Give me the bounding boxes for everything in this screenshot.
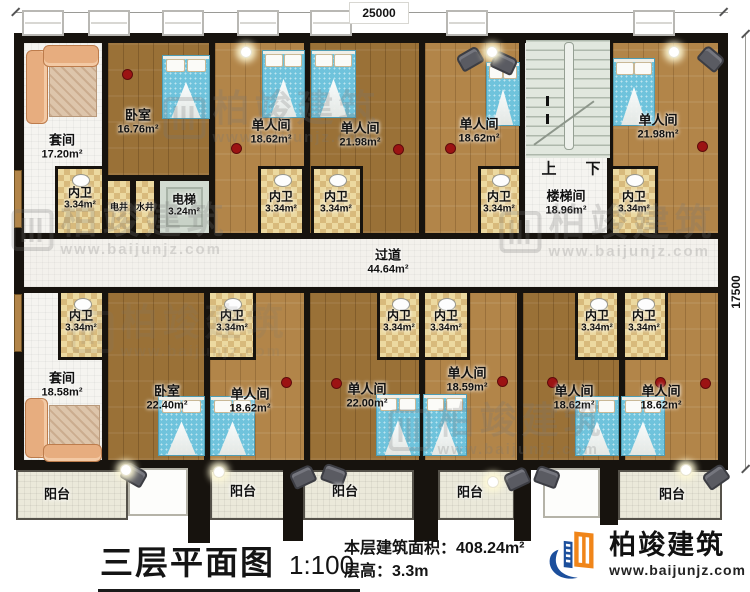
window-icon bbox=[237, 10, 279, 36]
room-name: 单人间 bbox=[251, 119, 292, 134]
room-label: 单人间18.62m² bbox=[251, 119, 292, 146]
room-label: 内卫3.34m² bbox=[628, 310, 660, 335]
lamp-icon bbox=[680, 464, 692, 476]
toilet-icon bbox=[274, 174, 292, 187]
room-label: 内卫3.34m² bbox=[65, 310, 97, 335]
room-name: 套间 bbox=[42, 134, 83, 149]
room-area: 18.96m² bbox=[546, 204, 587, 216]
plan-title-block: 三层平面图 1:100 bbox=[98, 536, 360, 592]
room-name: 卧室 bbox=[118, 109, 159, 124]
brand-url: www.baijunjz.com bbox=[609, 562, 746, 578]
floor-area-value: 408.24m² bbox=[456, 540, 525, 557]
sofa-seat bbox=[43, 45, 99, 67]
room-name: 水井 bbox=[136, 202, 154, 212]
dimension-right-value: 17500 bbox=[729, 262, 743, 322]
room-area: 3.34m² bbox=[64, 200, 96, 211]
floor-plan: 25000 17500 套间17.20m²卧室16.76m²电井水井电梯3.24… bbox=[0, 0, 750, 589]
room-label: 单人间22.00m² bbox=[347, 383, 388, 410]
room-name: 卧室 bbox=[147, 385, 188, 400]
knob-icon bbox=[700, 378, 711, 389]
room-label: 内卫3.34m² bbox=[320, 191, 352, 216]
room-label: 内卫3.34m² bbox=[581, 310, 613, 335]
window-icon bbox=[446, 10, 488, 36]
dimension-line-right bbox=[745, 33, 746, 470]
room-label: 内卫3.34m² bbox=[430, 310, 462, 335]
room-area: 3.24m² bbox=[168, 207, 200, 218]
plan-stats: 本层建筑面积：408.24m² 层高：3.3m bbox=[344, 537, 525, 583]
bed bbox=[262, 50, 305, 118]
stair-direction-label: 下 bbox=[585, 158, 600, 179]
sofa-seat bbox=[43, 444, 102, 462]
floor-height-row: 层高：3.3m bbox=[344, 560, 525, 583]
room-area: 22.00m² bbox=[347, 397, 388, 409]
room-name: 内卫 bbox=[64, 187, 96, 200]
pillow bbox=[187, 59, 206, 72]
room-name: 阳台 bbox=[659, 488, 685, 503]
room-label: 单人间18.62m² bbox=[554, 385, 595, 412]
room-area: 18.58m² bbox=[42, 386, 83, 398]
knob-icon bbox=[393, 144, 404, 155]
lamp-icon bbox=[213, 466, 225, 478]
lamp-icon bbox=[120, 464, 132, 476]
room-name: 阳台 bbox=[230, 485, 256, 500]
room-label: 阳台 bbox=[230, 485, 256, 500]
room-label: 阳台 bbox=[457, 486, 483, 501]
pillow bbox=[616, 62, 633, 75]
dimension-top-value: 25000 bbox=[349, 2, 409, 24]
room-area: 16.76m² bbox=[118, 123, 159, 135]
room-name: 阳台 bbox=[457, 486, 483, 501]
blanket bbox=[385, 420, 412, 455]
room-label: 电梯3.24m² bbox=[168, 194, 200, 219]
room-name: 单人间 bbox=[459, 118, 500, 133]
room-label: 单人间18.62m² bbox=[230, 388, 271, 415]
blanket bbox=[219, 421, 247, 455]
lamp-icon bbox=[486, 46, 498, 58]
knob-icon bbox=[697, 141, 708, 152]
knob-icon bbox=[281, 377, 292, 388]
blanket bbox=[630, 421, 657, 455]
brand-logo-icon bbox=[548, 527, 604, 583]
room-label: 内卫3.34m² bbox=[383, 310, 415, 335]
room-label: 阳台 bbox=[659, 488, 685, 503]
pillow bbox=[265, 54, 283, 67]
window-icon bbox=[633, 10, 675, 36]
room-name: 内卫 bbox=[320, 191, 352, 204]
room-area: 18.62m² bbox=[230, 402, 271, 414]
room-area: 18.62m² bbox=[641, 399, 682, 411]
room-area: 3.34m² bbox=[581, 323, 613, 334]
room-name: 单人间 bbox=[447, 367, 488, 382]
room-阳台 bbox=[16, 470, 128, 520]
room-name: 内卫 bbox=[628, 310, 660, 323]
rug bbox=[49, 58, 98, 117]
pillow bbox=[634, 62, 651, 75]
room-label: 电井 bbox=[110, 202, 128, 212]
room-area: 18.62m² bbox=[459, 132, 500, 144]
blanket bbox=[270, 79, 296, 117]
window-icon bbox=[162, 10, 204, 36]
knob-icon bbox=[497, 376, 508, 387]
room-label: 内卫3.34m² bbox=[64, 187, 96, 212]
bed bbox=[311, 50, 356, 118]
toilet-icon bbox=[492, 174, 510, 187]
room-name: 套间 bbox=[42, 372, 83, 387]
room-name: 单人间 bbox=[340, 122, 381, 137]
room-name: 单人间 bbox=[230, 388, 271, 403]
floor-height-label: 层高： bbox=[344, 563, 392, 580]
room-area: 44.64m² bbox=[368, 263, 409, 275]
bed bbox=[162, 55, 210, 119]
floor-area-label: 本层建筑面积： bbox=[344, 540, 456, 557]
room-name: 内卫 bbox=[430, 310, 462, 323]
blanket bbox=[171, 82, 200, 118]
lamp-icon bbox=[240, 46, 252, 58]
balcony-column bbox=[600, 463, 618, 525]
room-area: 18.62m² bbox=[251, 133, 292, 145]
room-name: 阳台 bbox=[44, 488, 70, 503]
stair-direction-label: 上 bbox=[541, 158, 556, 179]
room-area: 22.40m² bbox=[147, 399, 188, 411]
floor-area-row: 本层建筑面积：408.24m² bbox=[344, 537, 525, 560]
toilet-icon bbox=[626, 174, 644, 187]
room-area: 3.34m² bbox=[383, 323, 415, 334]
balcony-column bbox=[414, 463, 438, 541]
room-label: 单人间21.98m² bbox=[638, 114, 679, 141]
room-area: 21.98m² bbox=[638, 128, 679, 140]
knob-icon bbox=[122, 69, 133, 80]
room-area: 18.59m² bbox=[447, 381, 488, 393]
door-panel bbox=[14, 294, 22, 352]
window-icon bbox=[88, 10, 130, 36]
pillow bbox=[399, 398, 417, 411]
stair-arrow-icon bbox=[546, 114, 549, 124]
room-label: 阳台 bbox=[44, 488, 70, 503]
room-label: 内卫3.34m² bbox=[216, 310, 248, 335]
room-name: 内卫 bbox=[265, 191, 297, 204]
room-label: 单人间18.62m² bbox=[641, 385, 682, 412]
pillow bbox=[427, 398, 445, 411]
floor-height-value: 3.3m bbox=[392, 563, 428, 580]
room-area: 3.34m² bbox=[628, 323, 660, 334]
blanket bbox=[584, 421, 611, 455]
room-label: 套间18.58m² bbox=[42, 372, 83, 399]
stair-arrow-icon bbox=[546, 96, 549, 106]
pillow bbox=[446, 398, 464, 411]
room-label: 单人间18.59m² bbox=[447, 367, 488, 394]
window-icon bbox=[22, 10, 64, 36]
pillow bbox=[334, 54, 352, 67]
lamp-icon bbox=[668, 46, 680, 58]
room-label: 套间17.20m² bbox=[42, 134, 83, 161]
lamp-icon bbox=[487, 476, 499, 488]
room-name: 内卫 bbox=[383, 310, 415, 323]
room-name: 楼梯间 bbox=[546, 190, 587, 205]
knob-icon bbox=[445, 143, 456, 154]
room-name: 单人间 bbox=[641, 385, 682, 400]
room-name: 内卫 bbox=[581, 310, 613, 323]
room-name: 电井 bbox=[110, 202, 128, 212]
pillow bbox=[284, 54, 302, 67]
room-name: 单人间 bbox=[638, 114, 679, 129]
sofa bbox=[26, 45, 102, 129]
room-label: 水井 bbox=[136, 202, 154, 212]
brand-name: 柏竣建筑 bbox=[609, 532, 746, 559]
room-label: 阳台 bbox=[332, 485, 358, 500]
room-label: 过道44.64m² bbox=[368, 249, 409, 276]
stair-rail bbox=[564, 42, 574, 150]
room-area: 3.34m² bbox=[216, 323, 248, 334]
room-label: 单人间21.98m² bbox=[340, 122, 381, 149]
room-name: 内卫 bbox=[618, 191, 650, 204]
blanket bbox=[320, 79, 348, 117]
room-name: 内卫 bbox=[483, 191, 515, 204]
toilet-icon bbox=[329, 174, 347, 187]
room-label: 单人间18.62m² bbox=[459, 118, 500, 145]
room-area: 3.34m² bbox=[65, 323, 97, 334]
room-name: 单人间 bbox=[554, 385, 595, 400]
pillow bbox=[166, 59, 185, 72]
brand-text: 柏竣建筑 www.baijunjz.com bbox=[609, 532, 746, 578]
room-label: 卧室16.76m² bbox=[118, 109, 159, 136]
room-name: 单人间 bbox=[347, 383, 388, 398]
pillow bbox=[315, 54, 333, 67]
pillow bbox=[598, 400, 616, 413]
room-label: 内卫3.34m² bbox=[483, 191, 515, 216]
room-label: 内卫3.34m² bbox=[618, 191, 650, 216]
door-panel bbox=[14, 170, 22, 228]
room-area: 18.62m² bbox=[554, 399, 595, 411]
room-name: 电梯 bbox=[168, 194, 200, 207]
room-area: 3.34m² bbox=[483, 204, 515, 215]
room-name: 过道 bbox=[368, 249, 409, 264]
room-area: 3.34m² bbox=[618, 204, 650, 215]
sofa bbox=[25, 394, 105, 462]
room-label: 内卫3.34m² bbox=[265, 191, 297, 216]
room-name: 内卫 bbox=[65, 310, 97, 323]
brand-logo: 柏竣建筑 www.baijunjz.com bbox=[548, 527, 746, 583]
room-area: 3.34m² bbox=[430, 323, 462, 334]
plan-title: 三层平面图 bbox=[100, 536, 275, 584]
bed bbox=[423, 394, 467, 456]
room-label: 卧室22.40m² bbox=[147, 385, 188, 412]
balcony-column bbox=[188, 463, 210, 543]
window-icon bbox=[310, 10, 352, 36]
knob-icon bbox=[231, 143, 242, 154]
blanket bbox=[167, 421, 196, 455]
knob-icon bbox=[331, 378, 342, 389]
room-area: 17.20m² bbox=[42, 148, 83, 160]
room-name: 内卫 bbox=[216, 310, 248, 323]
room-area: 3.34m² bbox=[265, 204, 297, 215]
blanket bbox=[432, 420, 459, 455]
room-label: 楼梯间18.96m² bbox=[546, 190, 587, 217]
room-name: 阳台 bbox=[332, 485, 358, 500]
room-area: 21.98m² bbox=[340, 136, 381, 148]
room-area: 3.34m² bbox=[320, 204, 352, 215]
